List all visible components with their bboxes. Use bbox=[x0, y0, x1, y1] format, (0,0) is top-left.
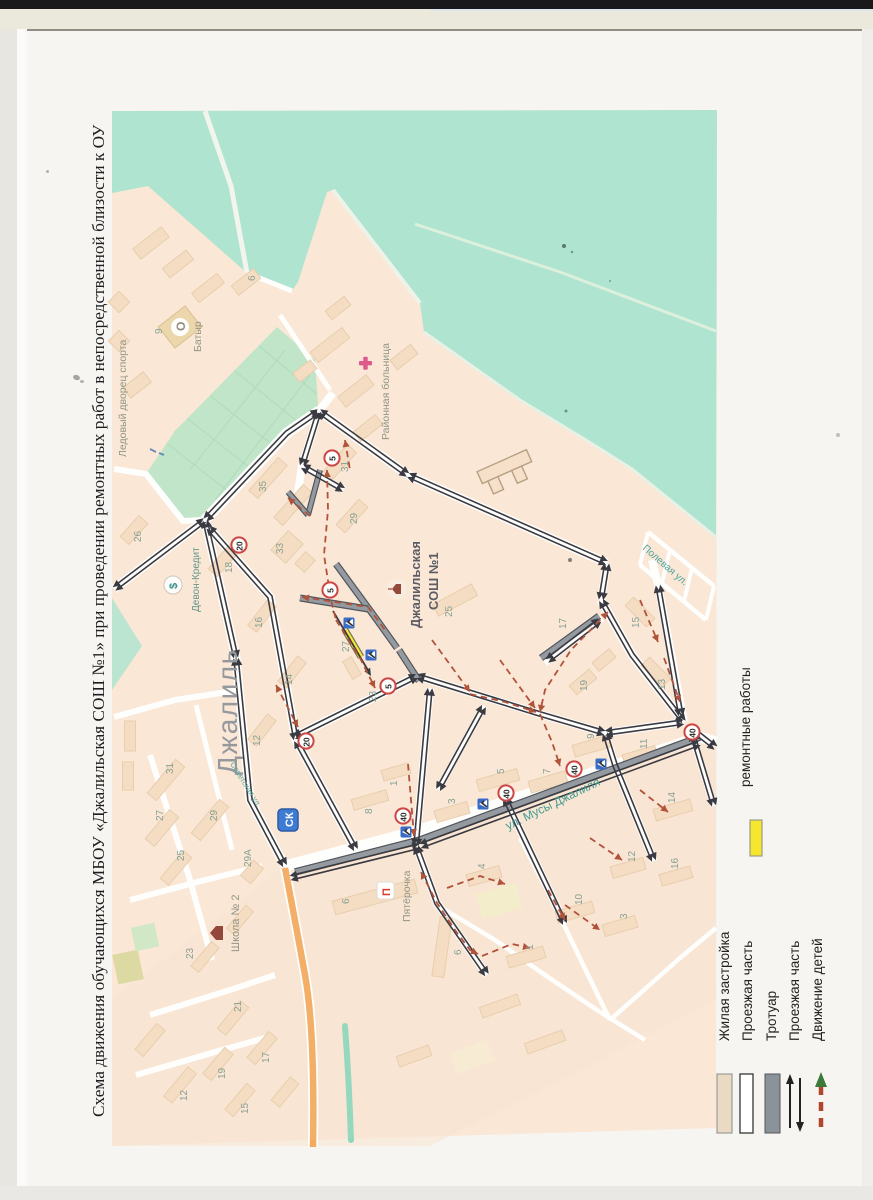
svg-text:Проезжая часть: Проезжая часть bbox=[787, 941, 802, 1041]
svg-text:Схема движения обучающихся МБО: Схема движения обучающихся МБОУ «Джалиль… bbox=[89, 124, 108, 1117]
svg-text:Проезжая часть: Проезжая часть bbox=[740, 941, 755, 1041]
svg-text:Жилая застройка: Жилая застройка bbox=[717, 931, 732, 1041]
svg-text:Тротуар: Тротуар bbox=[764, 991, 779, 1041]
svg-text:Движение детей: Движение детей bbox=[810, 938, 825, 1041]
svg-text:ремонтные работы: ремонтные работы bbox=[738, 667, 753, 787]
